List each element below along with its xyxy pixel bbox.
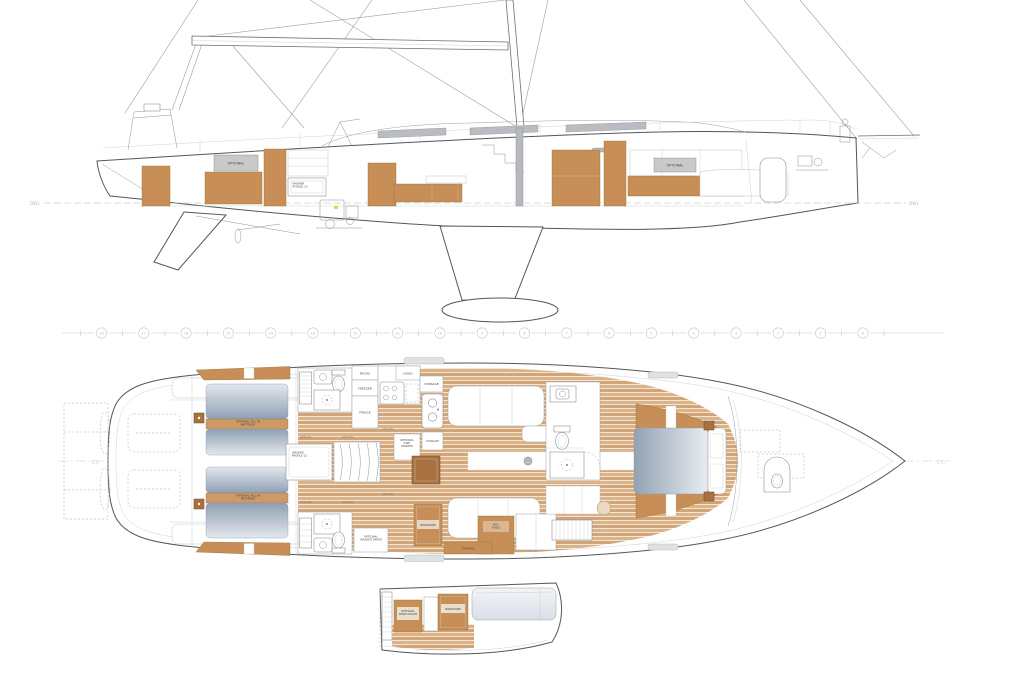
storage-lower-label: STORAGE	[426, 439, 439, 443]
station-number: 6	[608, 331, 610, 335]
station-number: 12	[353, 331, 357, 335]
toilet	[332, 532, 345, 553]
optional-label-aft: OPTIONAL	[228, 162, 245, 166]
wardrobe: WARDROBE	[414, 504, 442, 546]
station-number: 15	[226, 331, 230, 335]
cl-label-right: C.L.	[937, 460, 945, 465]
washbasin	[314, 538, 332, 552]
partial-bench	[472, 588, 556, 620]
wine-cooler-locker: OPTIONALWINECOOLER	[394, 600, 422, 632]
mast-post	[516, 128, 523, 206]
station-number: 18	[99, 331, 103, 335]
station-number: 9	[481, 331, 483, 335]
berth-mattress	[206, 429, 288, 455]
rudder-and-propeller	[154, 212, 300, 270]
pouf-stool	[597, 501, 611, 515]
yacht-general-arrangement-drawing: DWL DWL OPTIONAL	[0, 0, 1024, 675]
station-number: 1	[819, 331, 821, 335]
station-scale: 1817161514131211109876543210	[62, 328, 944, 338]
crew-wc	[764, 457, 790, 492]
partial-wardrobe-label: WARDROBE	[445, 607, 461, 611]
storage-upper-label: STORAGE	[424, 382, 438, 386]
wine-cooler-label: OPTIONALWINECOOLER	[399, 609, 418, 616]
washbasin	[314, 370, 332, 384]
companionway-stairs	[334, 442, 380, 482]
dwl-label-left: DWL	[30, 201, 41, 206]
toilet	[332, 370, 345, 392]
station-number: 3	[735, 331, 737, 335]
crew-wc-profile	[760, 158, 786, 202]
station-number: 8	[523, 331, 525, 335]
storage-drawer-label: STORAGE	[462, 547, 475, 551]
tank-label: -200 GAL.	[299, 500, 313, 504]
galley-island	[412, 456, 440, 484]
station-number: 4	[693, 331, 695, 335]
fridge-label: FRIDGE	[359, 411, 370, 415]
keel-and-bulb	[440, 226, 558, 322]
hood-label: HOOD	[403, 372, 413, 376]
grating-bench	[552, 520, 592, 540]
settee-port	[448, 386, 544, 426]
station-number: 10	[438, 331, 442, 335]
mast-section	[524, 457, 532, 465]
plan-view: OPTIONAL FILL INMATTRESS OPTIONAL FILL I…	[58, 358, 952, 562]
tank-label: -200 GAL.	[341, 500, 355, 504]
drawing-svg: DWL DWL OPTIONAL	[0, 0, 1024, 675]
coachroof-window	[566, 122, 646, 132]
storage-drawer: STORAGE	[444, 542, 492, 554]
coachroof-window	[470, 125, 538, 135]
profile-view: DWL DWL OPTIONAL	[30, 0, 920, 322]
station-number: 11	[395, 331, 399, 335]
tank-label: -150 GAL.	[381, 427, 395, 431]
dwl-label-right: DWL	[909, 201, 920, 206]
station-number: 5	[650, 331, 652, 335]
owner-berth	[634, 428, 708, 494]
berth-mattress	[206, 503, 288, 538]
cl-label-left: C.L.	[92, 460, 100, 465]
berth-mattress	[206, 467, 288, 493]
tank-label: -150 GAL.	[381, 492, 395, 496]
wardrobe-label: WARDROBE	[420, 523, 436, 527]
station-number: 0	[862, 331, 864, 335]
partial-wardrobe: WARDROBE	[438, 594, 468, 630]
coachroof-window	[378, 128, 446, 138]
freezer-label: FREEZER	[358, 387, 372, 391]
aft-head-port	[298, 368, 352, 412]
station-number: 7	[566, 331, 568, 335]
tank-label: -200 GAL.	[341, 435, 355, 439]
partial-plan-view: OPTIONALWINECOOLER WARDROBE	[380, 583, 562, 654]
anchor-sketch	[862, 142, 896, 158]
micro-label: MICRO	[360, 372, 371, 376]
grating-hatch	[382, 592, 392, 640]
station-number: 16	[184, 331, 188, 335]
station-number: 17	[142, 331, 146, 335]
optional-label-fwd: OPTIONAL	[667, 164, 684, 168]
owner-cabin	[634, 404, 726, 518]
keel-box: WASHERPADDLE 12	[286, 444, 332, 480]
cockpit-arch-and-windshield	[128, 104, 360, 150]
station-number: 14	[268, 331, 272, 335]
berth-mattress	[206, 384, 288, 419]
station-number: 2	[777, 331, 779, 335]
forward-head	[546, 382, 600, 480]
tank-label: -200 GAL.	[299, 435, 313, 439]
galley-sinks	[422, 394, 443, 428]
station-number: 13	[311, 331, 315, 335]
mast-and-boom	[192, 0, 524, 127]
